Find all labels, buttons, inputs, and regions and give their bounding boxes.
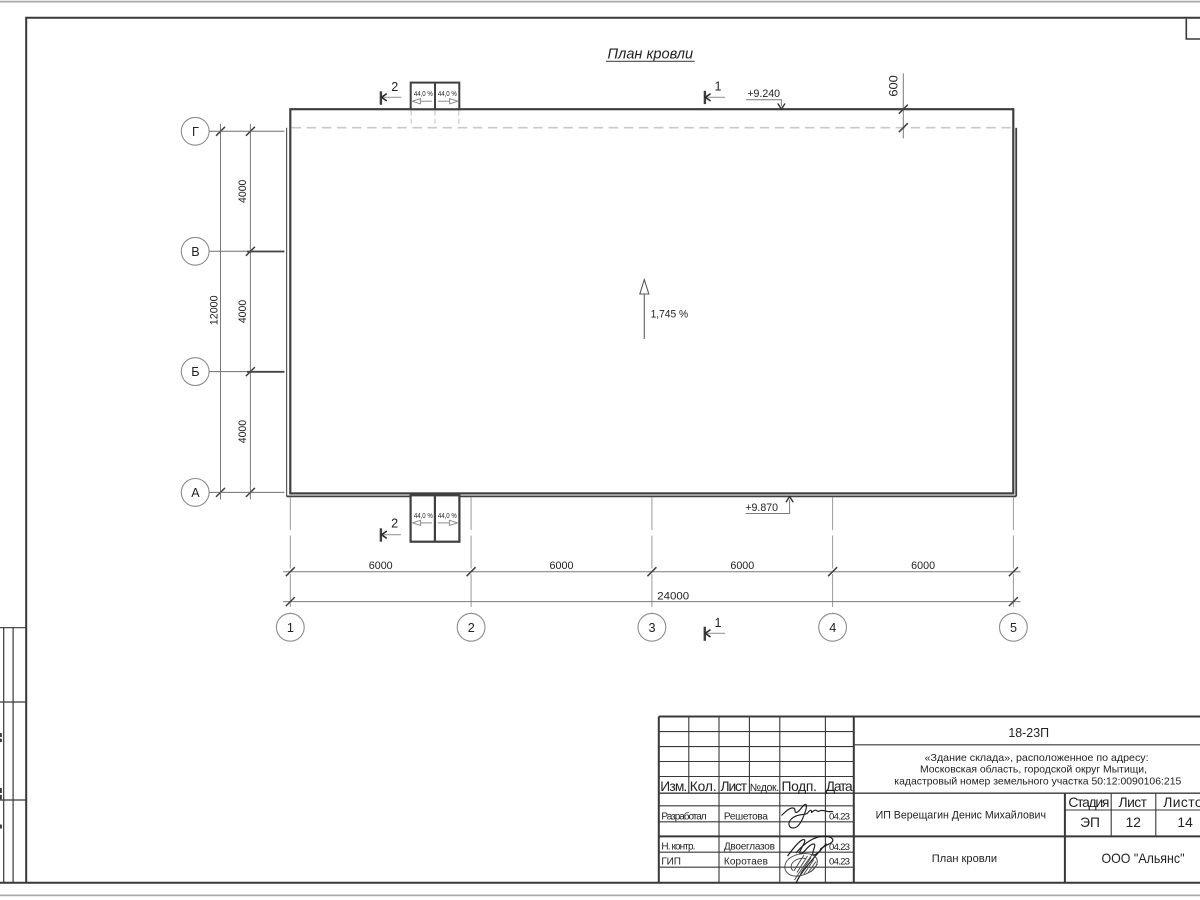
svg-text:44,0 %: 44,0 % [438, 511, 457, 520]
svg-text:А: А [191, 486, 200, 500]
svg-text:44,0 %: 44,0 % [414, 511, 433, 520]
svg-text:1: 1 [714, 616, 721, 630]
svg-text:Изм.: Изм. [660, 779, 687, 794]
svg-text:4000: 4000 [237, 420, 249, 443]
svg-text:04.23: 04.23 [829, 812, 850, 823]
svg-text:Г: Г [192, 125, 199, 139]
svg-text:44,0 %: 44,0 % [414, 89, 433, 98]
svg-text:№док.: №док. [750, 782, 780, 794]
svg-text:Двоеглазов: Двоеглазов [724, 842, 775, 853]
svg-text:2: 2 [391, 517, 398, 531]
svg-text:6000: 6000 [369, 560, 393, 572]
svg-text:12: 12 [1126, 815, 1141, 830]
svg-text:6000: 6000 [550, 560, 574, 572]
svg-text:Лист: Лист [1119, 794, 1148, 810]
svg-text:Подп.: Подп. [781, 779, 817, 794]
svg-text:Решетова: Решетова [724, 811, 768, 822]
svg-text:3: 3 [648, 621, 655, 635]
svg-text:+9.240: +9.240 [747, 88, 780, 100]
svg-text:Стадия: Стадия [1068, 794, 1109, 810]
svg-text:В: В [191, 245, 199, 259]
svg-text:Московская область, городской: Московская область, городской округ Мыти… [920, 764, 1147, 776]
svg-text:кадастровый номер земельного у: кадастровый номер земельного участка 50:… [894, 776, 1181, 787]
svg-text:Лист: Лист [721, 779, 748, 794]
svg-text:ООО "Альянс": ООО "Альянс" [1102, 851, 1185, 866]
svg-text:Дата: Дата [826, 779, 853, 794]
svg-text:Н. контр.: Н. контр. [661, 842, 695, 853]
svg-text:ГИП: ГИП [661, 856, 681, 867]
svg-text:План кровли: План кровли [608, 46, 694, 62]
svg-text:14: 14 [1177, 815, 1193, 830]
svg-text:План кровли: План кровли [932, 853, 997, 865]
svg-text:2: 2 [468, 621, 475, 635]
svg-text:6000: 6000 [911, 560, 935, 572]
svg-text:1,745 %: 1,745 % [651, 309, 689, 321]
svg-text:4000: 4000 [237, 300, 249, 323]
svg-text:ИП Верещагин Денис Михайлович: ИП Верещагин Денис Михайлович [876, 809, 1046, 821]
svg-text:+9.870: +9.870 [745, 502, 778, 514]
svg-text:Кол.: Кол. [690, 779, 717, 794]
svg-text:2: 2 [391, 80, 398, 94]
svg-text:24000: 24000 [657, 590, 689, 602]
svg-text:18-23П: 18-23П [1008, 725, 1049, 740]
svg-text:1: 1 [287, 621, 294, 635]
svg-text:4000: 4000 [237, 180, 249, 203]
svg-text:Б: Б [191, 365, 199, 379]
svg-text:04.23: 04.23 [829, 857, 850, 868]
svg-text:Коротаев: Коротаев [724, 856, 768, 867]
svg-text:44,0 %: 44,0 % [438, 89, 457, 98]
svg-text:12000: 12000 [209, 295, 221, 325]
svg-text:ЭП: ЭП [1080, 815, 1100, 830]
svg-text:Листов: Листов [1163, 794, 1200, 810]
svg-text:5: 5 [1010, 621, 1017, 635]
svg-text:04.23: 04.23 [829, 842, 850, 853]
svg-text:1: 1 [714, 80, 721, 94]
svg-text:6000: 6000 [730, 560, 754, 572]
svg-text:4: 4 [829, 621, 836, 635]
svg-text:600: 600 [886, 75, 900, 97]
svg-text:Разработал: Разработал [661, 810, 706, 822]
svg-text:«Здание склада», расположенное: «Здание склада», расположенное по адресу… [925, 753, 1149, 764]
